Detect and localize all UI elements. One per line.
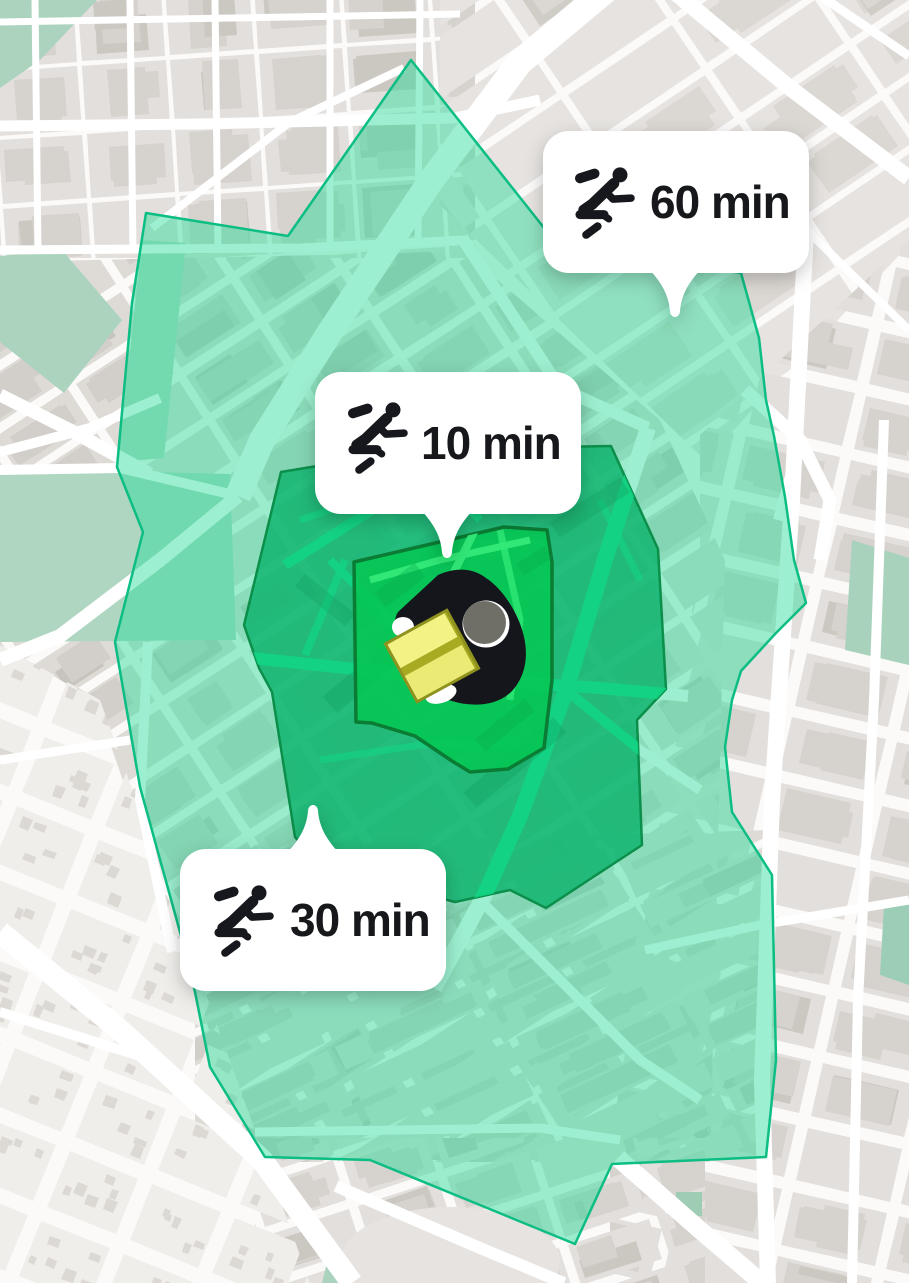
svg-text:60 min: 60 min <box>650 176 790 228</box>
svg-text:10 min: 10 min <box>421 417 561 469</box>
svg-text:30 min: 30 min <box>290 894 430 946</box>
